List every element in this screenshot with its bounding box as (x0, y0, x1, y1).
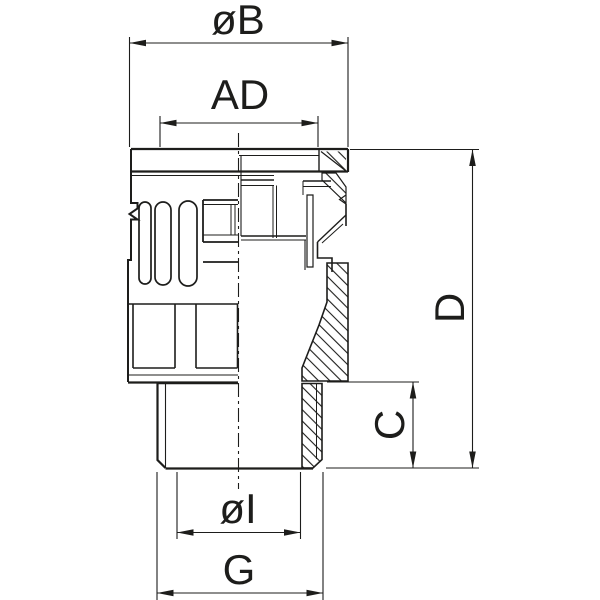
dim-label-outer-diameter: øB (211, 0, 265, 43)
spring-finger (307, 195, 313, 267)
arrowhead-left-icon (177, 529, 194, 536)
part-section-right (239, 149, 348, 468)
arrowhead-down-icon (410, 452, 417, 469)
arrowhead-right-icon (284, 529, 301, 536)
arrowhead-right-icon (332, 40, 349, 47)
section-hatch-thread (302, 384, 322, 469)
dim-label-thread: G (223, 546, 256, 593)
slot-capsule (155, 202, 171, 285)
arrowhead-down-icon (469, 452, 476, 469)
dim-label-inner-diameter: øI (219, 485, 256, 532)
slot-capsule (139, 202, 151, 284)
technical-drawing-canvas: øB AD D C øI G (0, 0, 600, 600)
arrowhead-left-icon (157, 590, 174, 597)
dim-label-overall-height: D (426, 293, 473, 323)
section-hatch-claw (322, 173, 346, 203)
arrowhead-left-icon (160, 120, 177, 127)
dim-label-cap-width: AD (211, 71, 269, 118)
technical-drawing-page: øB AD D C øI G (0, 0, 600, 600)
arrowhead-right-icon (302, 120, 319, 127)
dim-label-thread-length: C (366, 410, 413, 440)
section-hatch-wall (302, 263, 348, 381)
arrowhead-up-icon (410, 382, 417, 399)
slot-capsule (179, 201, 197, 286)
arrowhead-right-icon (307, 590, 324, 597)
arrowhead-up-icon (469, 150, 476, 167)
arrowhead-left-icon (130, 40, 147, 47)
